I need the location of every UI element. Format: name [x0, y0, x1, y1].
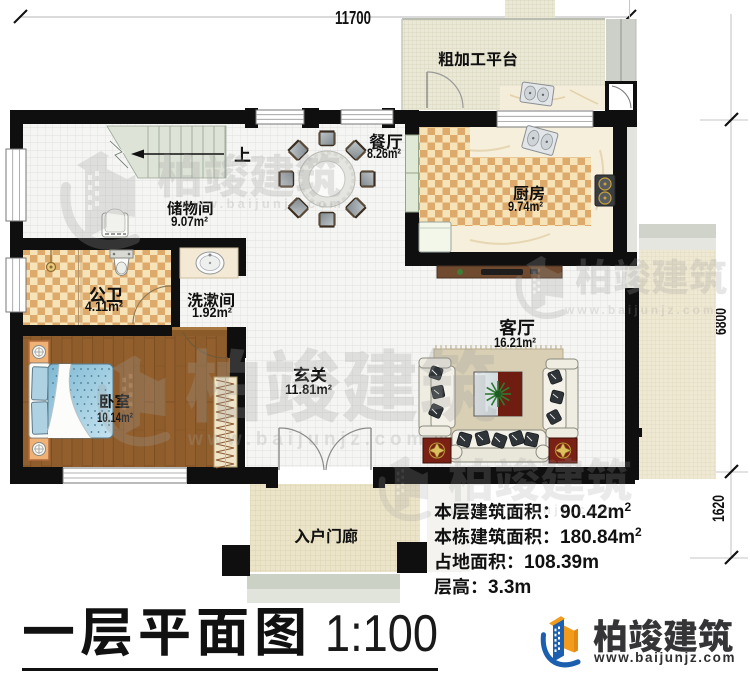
svg-text:180.84m2: 180.84m2: [560, 525, 642, 548]
svg-text:3.3m: 3.3m: [488, 577, 531, 598]
svg-text:11700: 11700: [335, 8, 371, 28]
svg-text:1:100: 1:100: [325, 605, 438, 663]
svg-text:4.11m²: 4.11m²: [85, 298, 123, 314]
svg-text:www.baijunjz.com: www.baijunjz.com: [593, 650, 736, 665]
svg-text:www.baijunjz.com: www.baijunjz.com: [449, 502, 614, 517]
svg-text:www.baijunjz.com: www.baijunjz.com: [179, 196, 344, 211]
svg-text:1.92m²: 1.92m²: [192, 304, 232, 320]
svg-text:www.baijunjz.com: www.baijunjz.com: [564, 303, 717, 317]
svg-text:9.74m²: 9.74m²: [508, 198, 543, 214]
svg-text:16.21m²: 16.21m²: [494, 334, 536, 350]
svg-text:8.26m²: 8.26m²: [367, 145, 401, 161]
svg-text:108.39m: 108.39m: [524, 552, 599, 573]
svg-text:1620: 1620: [709, 495, 728, 522]
svg-text:9.07m²: 9.07m²: [171, 213, 208, 229]
svg-text:www.baijunjz.com: www.baijunjz.com: [187, 429, 428, 450]
